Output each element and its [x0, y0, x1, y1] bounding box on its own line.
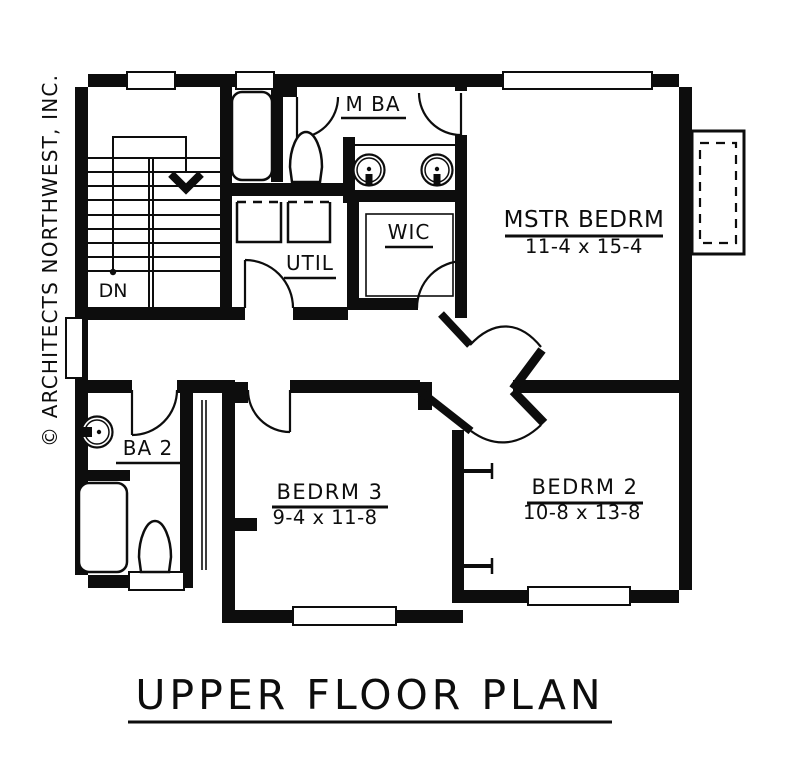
room-label-ba2: BA 2 [123, 436, 173, 460]
floor-plan-page: M BA UTIL WIC BA 2 MSTR BEDRM 11-4 x 15-… [0, 0, 800, 763]
sink-ba2 [82, 417, 113, 448]
bay-window [692, 131, 744, 254]
drawing-title: UPPER FLOOR PLAN [128, 671, 612, 722]
washer-box [237, 202, 281, 242]
washer-dryer [237, 202, 330, 242]
stair-center-rail [149, 158, 153, 307]
room-label-mba: M BA [345, 92, 400, 116]
stair-rail-post [110, 269, 116, 275]
toilet-ba2 [139, 521, 171, 572]
mstr-door-leaf [441, 314, 470, 345]
mstr-bath-door-swing [419, 93, 461, 135]
sink-mba-left [354, 155, 385, 186]
window [528, 587, 630, 605]
room-label-bedrm2: BEDRM 2 [531, 475, 638, 499]
stairs-dn-label: DN [99, 280, 128, 302]
bedrm2-closet-stubs [461, 471, 492, 566]
window [127, 72, 175, 89]
room-dims-bedrm2: 10-8 x 13-8 [523, 501, 641, 524]
room-label-wic: WIC [388, 220, 431, 244]
window [503, 72, 652, 89]
bathtub-ba2 [79, 483, 127, 572]
bedrm2-door-leaf [420, 391, 471, 431]
room-label-util: UTIL [286, 251, 334, 275]
room-dims-bedrm3: 9-4 x 11-8 [272, 506, 377, 529]
floor-plan-drawing: M BA UTIL WIC BA 2 MSTR BEDRM 11-4 x 15-… [0, 0, 800, 763]
window [129, 572, 184, 590]
window [236, 72, 274, 89]
window [66, 318, 83, 378]
toilet-mba [290, 132, 322, 182]
room-label-bedrm3: BEDRM 3 [276, 480, 383, 504]
bedrm2-door-swing [471, 425, 541, 442]
ba2-door-swing [132, 390, 177, 435]
architect-watermark: © ARCHITECTS NORTHWEST, INC. [38, 74, 62, 447]
sink-mba-right [422, 155, 453, 186]
window [293, 607, 396, 625]
room-label-mstr: MSTR BEDRM [504, 207, 665, 233]
mstr-door-swing [470, 326, 541, 347]
dryer-box [288, 202, 330, 242]
bathtub-mba [232, 92, 272, 180]
closet-shelf-lines [202, 400, 206, 570]
page-title: UPPER FLOOR PLAN [135, 671, 604, 719]
room-dims-mstr: 11-4 x 15-4 [525, 235, 643, 258]
bedrm3-door-swing [248, 390, 290, 432]
